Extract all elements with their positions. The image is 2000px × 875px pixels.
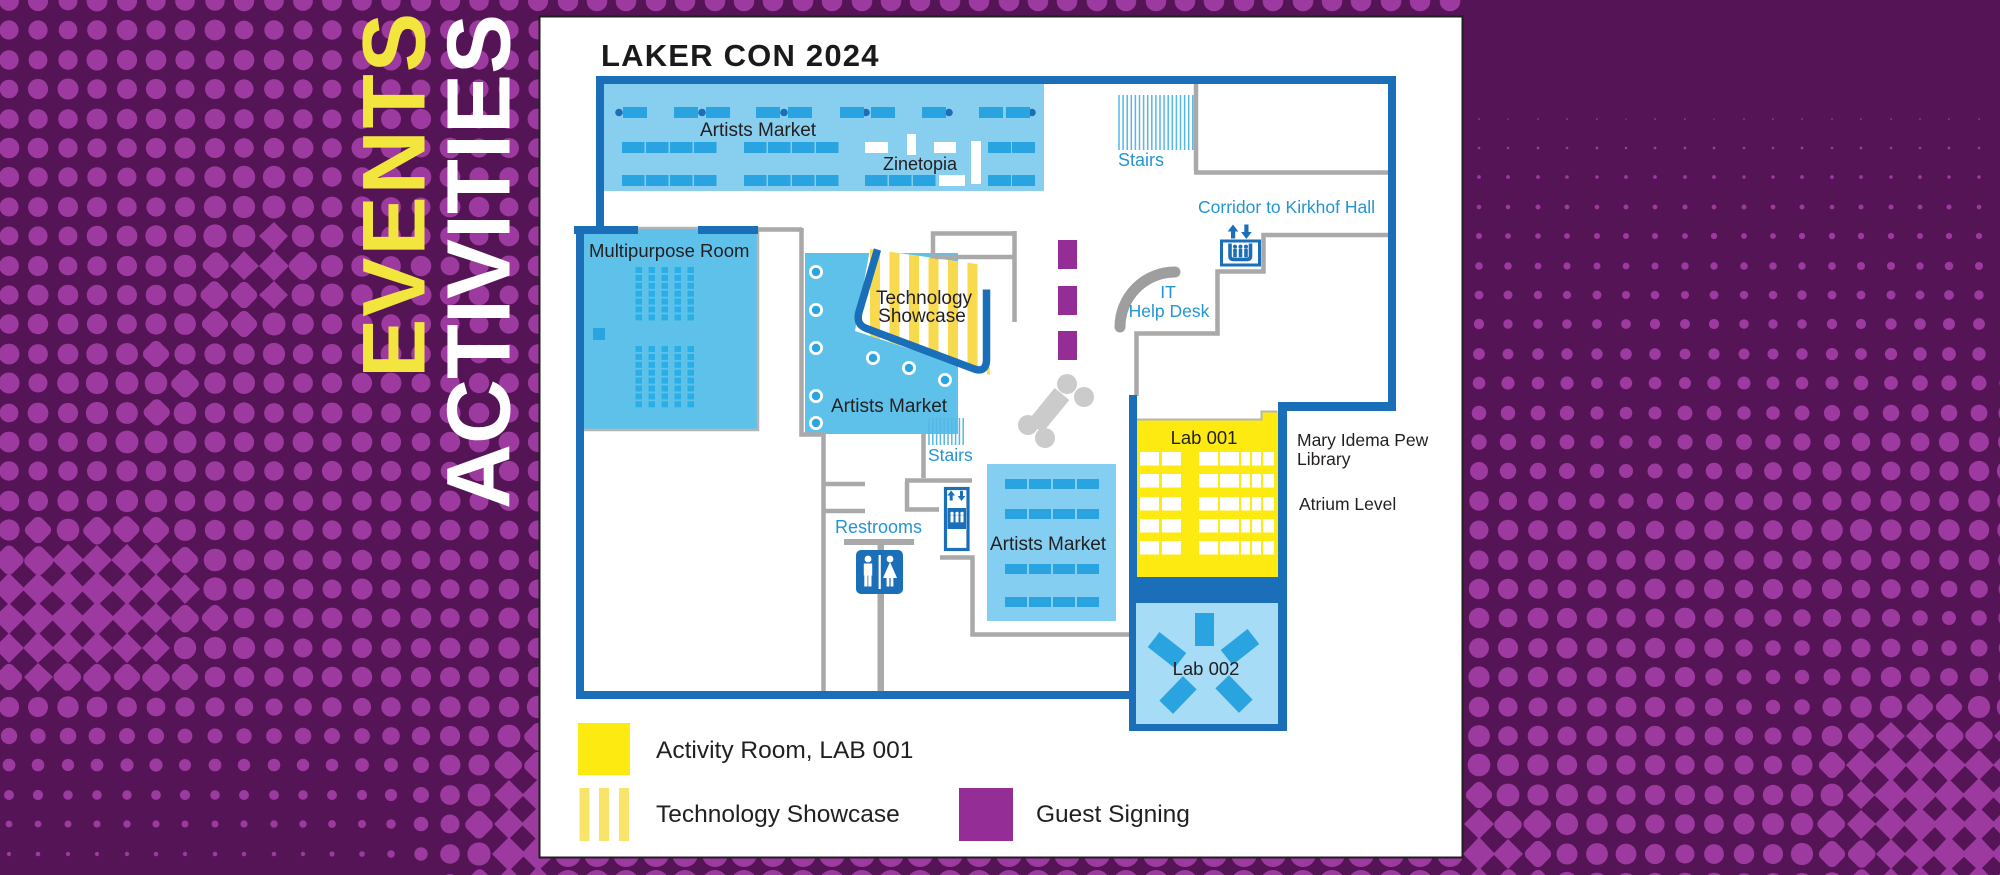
svg-text:Lab 002: Lab 002 [1173, 658, 1240, 679]
svg-text:Showcase: Showcase [878, 306, 966, 327]
svg-text:Stairs: Stairs [928, 445, 973, 465]
svg-text:Help Desk: Help Desk [1129, 301, 1210, 321]
svg-text:Corridor to Kirkhof Hall: Corridor to Kirkhof Hall [1198, 197, 1375, 217]
svg-text:Lab 001: Lab 001 [1171, 427, 1238, 448]
svg-text:IT: IT [1160, 282, 1176, 302]
svg-text:EVENTS: EVENTS [344, 11, 444, 378]
svg-text:ACTIVITIES: ACTIVITIES [430, 14, 530, 509]
svg-text:LAKER CON 2024: LAKER CON 2024 [601, 38, 880, 73]
svg-text:Artists Market: Artists Market [700, 120, 817, 141]
svg-text:Activity Room, LAB 001: Activity Room, LAB 001 [656, 737, 913, 764]
svg-text:Mary Idema Pew: Mary Idema Pew [1297, 430, 1429, 450]
svg-text:Restrooms: Restrooms [835, 517, 922, 537]
svg-text:Library: Library [1297, 449, 1351, 469]
svg-text:Multipurpose Room: Multipurpose Room [589, 240, 749, 261]
svg-text:Atrium Level: Atrium Level [1299, 494, 1396, 514]
svg-text:Technology Showcase: Technology Showcase [656, 801, 900, 828]
svg-text:Zinetopia: Zinetopia [883, 154, 958, 174]
svg-text:Guest Signing: Guest Signing [1036, 801, 1190, 828]
svg-text:Artists Market: Artists Market [990, 534, 1107, 555]
svg-text:Artists Market: Artists Market [831, 396, 948, 417]
svg-text:Stairs: Stairs [1118, 150, 1164, 170]
